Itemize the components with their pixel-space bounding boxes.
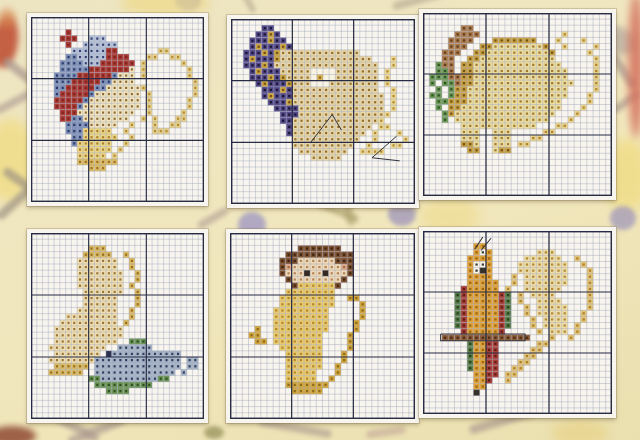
paper-branch-shape [196,206,229,230]
paper-blob-shape [0,426,36,440]
paper-branch-shape [237,0,256,14]
stitch-chart-bird-and-fish [27,229,208,423]
stitch-chart-grazing-animal [419,9,616,200]
paper-blob-shape [204,426,224,439]
stitch-chart-parrot [419,227,616,418]
scanned-cross-stitch-pattern-page [0,0,640,440]
stitch-chart-monkey [226,229,419,423]
paper-branch-shape [366,425,407,438]
paper-blob-shape [552,420,608,440]
paper-blob-shape [628,0,640,138]
stitch-chart-bird [27,13,208,206]
stitch-chart-fish [227,15,419,208]
